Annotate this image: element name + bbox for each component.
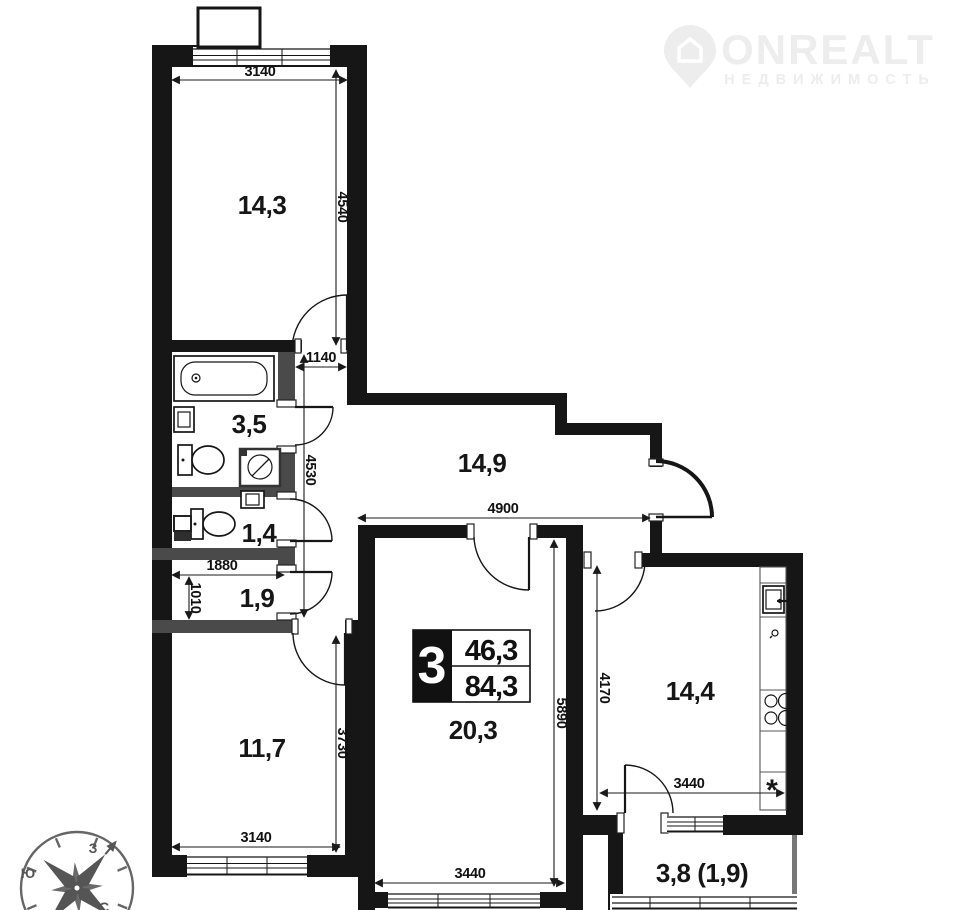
dim-kitchen-height: 4170 — [596, 672, 612, 703]
label-balcony: 3,8 (1,9) — [656, 858, 748, 888]
label-bathroom: 3,5 — [232, 409, 267, 439]
bathroom-toilet — [178, 445, 224, 475]
dim-living-height: 5890 — [553, 697, 569, 728]
dim-room-11-7-width: 3140 — [240, 830, 271, 846]
dim-room-14-3-height: 4540 — [334, 191, 350, 222]
dim-room-14-3-width: 3140 — [244, 64, 275, 80]
apartment-info-badge: 3 46,3 84,3 — [413, 630, 530, 703]
window-kitchen-balcony — [667, 816, 723, 833]
badge-rooms-count: 3 — [418, 637, 447, 695]
brand-name: ONREALT — [721, 26, 935, 73]
label-kitchen: 14,4 — [666, 676, 716, 706]
dim-vestibule-width: 1140 — [306, 350, 336, 366]
balcony-box-unit — [198, 8, 260, 47]
brand-tagline: НЕДВИЖИМОСТЬ — [724, 72, 936, 88]
bathtub — [174, 356, 274, 401]
dim-living-width: 3440 — [454, 866, 485, 882]
dim-wardrobe-width: 1880 — [206, 558, 237, 574]
wc-toilet — [191, 509, 235, 539]
label-living-room: 20,3 — [449, 715, 498, 745]
floorplan-drawing: ONREALT НЕДВИЖИМОСТЬ — [0, 0, 960, 910]
fridge-asterisk-icon: * — [766, 774, 778, 807]
label-wardrobe: 1,9 — [240, 583, 275, 613]
bathroom-sink — [174, 407, 194, 432]
floorplan-page: ONREALT НЕДВИЖИМОСТЬ — [0, 0, 960, 910]
compass-south-label: Ю — [21, 865, 35, 881]
dim-kitchen-width: 3440 — [673, 776, 704, 792]
label-wc: 1,4 — [242, 518, 278, 548]
wc-shaft — [174, 516, 191, 541]
badge-living-area: 46,3 — [465, 635, 518, 667]
dim-room-11-7-height: 3730 — [334, 727, 350, 758]
window-room-11-7 — [187, 856, 307, 876]
compass-west-label: З — [89, 840, 98, 856]
label-hallway: 14,9 — [458, 448, 507, 478]
dim-hallway-width: 4900 — [487, 501, 518, 517]
washing-machine — [240, 449, 280, 486]
dim-bath-block-height: 4530 — [302, 454, 318, 485]
label-room-11-7: 11,7 — [238, 733, 285, 763]
window-balcony-front — [610, 894, 797, 910]
compass-north-label: С — [99, 899, 109, 910]
label-room-14-3: 14,3 — [238, 190, 287, 220]
wc-sink — [241, 491, 264, 508]
badge-total-area: 84,3 — [465, 671, 518, 703]
window-living-room — [388, 893, 540, 908]
dim-wardrobe-height: 1010 — [187, 582, 203, 613]
